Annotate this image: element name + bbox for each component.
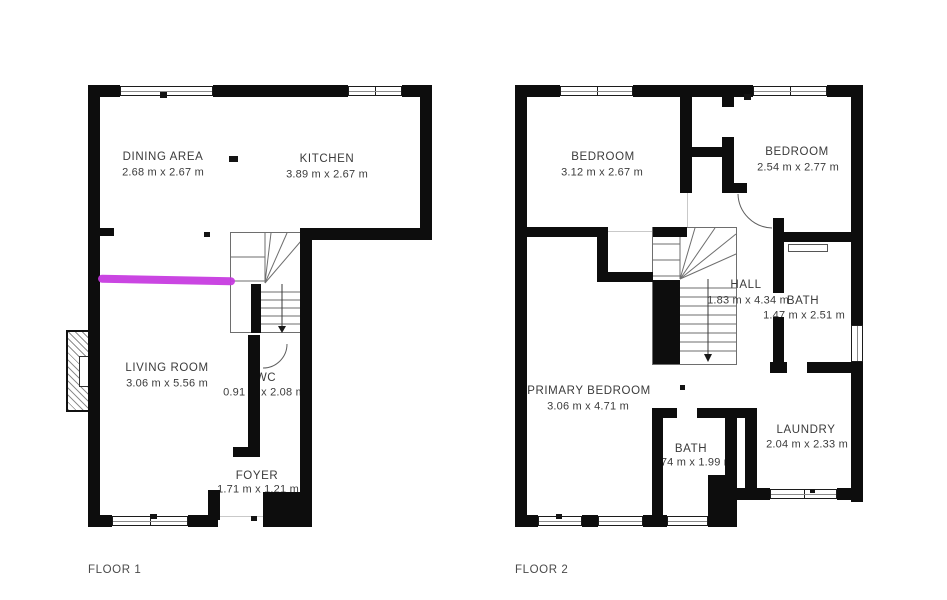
- wall-stub: [722, 97, 734, 107]
- wall-segment: [773, 218, 784, 293]
- room-dims-bedroom1: 3.12 m x 2.67 m: [561, 166, 643, 179]
- room-dims-living: 3.06 m x 5.56 m: [126, 377, 208, 390]
- door-threshold-line: [603, 231, 653, 232]
- room-label-bedroom2: BEDROOM: [765, 146, 829, 160]
- wall-segment: [515, 515, 538, 527]
- dimension-tick: [204, 232, 210, 237]
- wall-segment: [300, 228, 432, 240]
- room-dims-kitchen: 3.89 m x 2.67 m: [286, 168, 368, 181]
- room-dims-wc: 0.91 m x 2.08 m: [223, 386, 305, 399]
- dimension-tick: [229, 156, 238, 162]
- wall-segment: [837, 488, 863, 500]
- window: [667, 516, 708, 526]
- wall-segment: [520, 227, 603, 237]
- room-dims-hall: 1.83 m x 4.34 m: [707, 294, 789, 307]
- wall-corner: [263, 492, 312, 527]
- wall-segment: [745, 410, 757, 490]
- dimension-tick: [744, 94, 751, 100]
- wall-segment: [213, 85, 348, 97]
- wall-segment: [582, 515, 598, 527]
- dimension-tick: [251, 516, 257, 521]
- dimension-tick: [556, 514, 562, 519]
- dimension-tick: [810, 489, 815, 493]
- wall-segment: [248, 335, 260, 452]
- wall-segment: [233, 447, 260, 457]
- room-dims-bath-bottom: 74 m x 1.99 m: [661, 456, 733, 469]
- room-label-hall: HALL: [730, 279, 761, 293]
- wall-stub: [208, 490, 220, 520]
- window: [770, 489, 837, 499]
- window: [348, 86, 402, 96]
- wall-segment: [633, 85, 753, 97]
- door-arc-bedroom2: [737, 193, 774, 230]
- wall-segment: [807, 362, 863, 373]
- room-label-kitchen: KITCHEN: [300, 153, 355, 167]
- room-dims-bedroom2: 2.54 m x 2.77 m: [757, 161, 839, 174]
- room-label-living: LIVING ROOM: [125, 362, 208, 376]
- wall-segment: [515, 85, 527, 527]
- wall-segment: [851, 362, 863, 502]
- wall-stub: [100, 228, 114, 236]
- wall-segment: [643, 515, 667, 527]
- wall-segment: [686, 147, 734, 157]
- wall-segment: [680, 97, 692, 193]
- room-dims-dining: 2.68 m x 2.67 m: [122, 166, 204, 179]
- wall-segment: [420, 85, 432, 240]
- wall-segment: [88, 515, 112, 527]
- wall-segment: [770, 362, 787, 373]
- floor2-caption: FLOOR 2: [515, 564, 568, 576]
- wall-segment: [653, 227, 687, 237]
- wall-segment: [697, 408, 757, 418]
- wall-stub: [734, 183, 747, 193]
- dimension-tick: [680, 385, 685, 390]
- room-label-dining: DINING AREA: [123, 151, 204, 165]
- wall-corner: [708, 475, 737, 527]
- door-arc-wc: [262, 343, 289, 370]
- window: [560, 86, 633, 96]
- window: [753, 86, 827, 96]
- window: [598, 516, 643, 526]
- room-dims-primary: 3.06 m x 4.71 m: [547, 400, 629, 413]
- wall-segment: [722, 137, 734, 193]
- wall-segment: [652, 408, 663, 516]
- floor1-caption: FLOOR 1: [88, 564, 141, 576]
- wall-segment: [784, 232, 863, 242]
- highlight-annotation: [98, 275, 235, 286]
- wall-segment: [88, 85, 100, 527]
- wall-segment: [851, 85, 863, 325]
- hall-line: [687, 193, 688, 227]
- staircase-f1: [229, 231, 303, 334]
- wall-segment: [725, 418, 737, 478]
- room-label-bath-top: BATH: [787, 295, 819, 309]
- room-label-primary: PRIMARY BEDROOM: [527, 385, 651, 399]
- dimension-tick: [150, 514, 157, 519]
- room-label-laundry: LAUNDRY: [777, 424, 836, 438]
- room-label-foyer: FOYER: [236, 470, 279, 484]
- floor-plan-canvas: DINING AREA 2.68 m x 2.67 m KITCHEN 3.89…: [0, 0, 947, 600]
- room-dims-laundry: 2.04 m x 2.33 m: [766, 438, 848, 451]
- room-label-bedroom1: BEDROOM: [571, 151, 635, 165]
- dimension-tick: [160, 92, 167, 98]
- wall-segment: [300, 240, 312, 527]
- room-label-bath-bottom: BATH: [675, 443, 707, 457]
- window: [851, 325, 863, 362]
- wall-segment: [597, 272, 653, 282]
- closet-shelf: [788, 244, 828, 252]
